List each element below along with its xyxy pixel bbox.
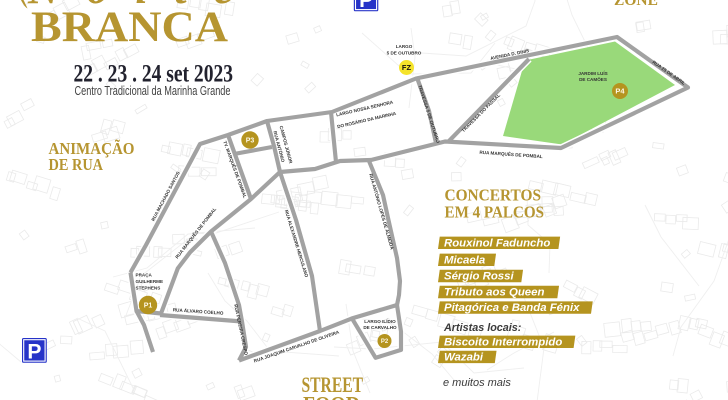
svg-text:ZONE: ZONE [614, 0, 658, 9]
svg-text:FZ: FZ [402, 63, 412, 72]
svg-text:Tributo aos Queen: Tributo aos Queen [444, 287, 544, 299]
svg-text:P: P [27, 340, 41, 363]
svg-text:P: P [359, 0, 373, 12]
svg-text:P4: P4 [615, 87, 625, 96]
svg-text:Sérgio Rossi: Sérgio Rossi [444, 271, 514, 283]
svg-text:Pitagórica e Banda Fénix: Pitagórica e Banda Fénix [444, 302, 580, 314]
svg-text:DE RUA: DE RUA [49, 155, 104, 174]
svg-text:LARGO: LARGO [396, 44, 413, 49]
svg-text:Micaela: Micaela [444, 254, 485, 266]
svg-text:Wazabi: Wazabi [444, 351, 484, 363]
svg-text:DE CARVALHO: DE CARVALHO [363, 325, 397, 330]
svg-text:LARGO ILÍDIO: LARGO ILÍDIO [364, 317, 396, 324]
svg-text:EM 4 PALCOS: EM 4 PALCOS [445, 203, 545, 222]
svg-text:DE CAMÕES: DE CAMÕES [579, 76, 607, 82]
svg-text:BRANCA: BRANCA [31, 4, 228, 51]
svg-text:Biscoito Interrompido: Biscoito Interrompido [444, 336, 562, 348]
svg-text:P1: P1 [144, 303, 153, 310]
svg-text:JARDIM LUÍS: JARDIM LUÍS [578, 69, 607, 76]
svg-text:Centro Tradicional da Marinha: Centro Tradicional da Marinha Grande [75, 83, 231, 98]
svg-text:5 DE OUTUBRO: 5 DE OUTUBRO [387, 51, 422, 56]
svg-text:Artistas locais:: Artistas locais: [443, 322, 522, 334]
svg-text:P2: P2 [381, 339, 389, 345]
svg-text:P3: P3 [246, 138, 255, 145]
svg-text:GUILHERME: GUILHERME [136, 279, 164, 284]
svg-text:e muitos mais: e muitos mais [443, 377, 511, 389]
svg-text:FOOD: FOOD [303, 392, 360, 400]
svg-text:Rouxinol Faduncho: Rouxinol Faduncho [444, 237, 550, 249]
svg-text:PRAÇA: PRAÇA [136, 273, 153, 278]
svg-text:STEPHENS: STEPHENS [136, 286, 161, 291]
